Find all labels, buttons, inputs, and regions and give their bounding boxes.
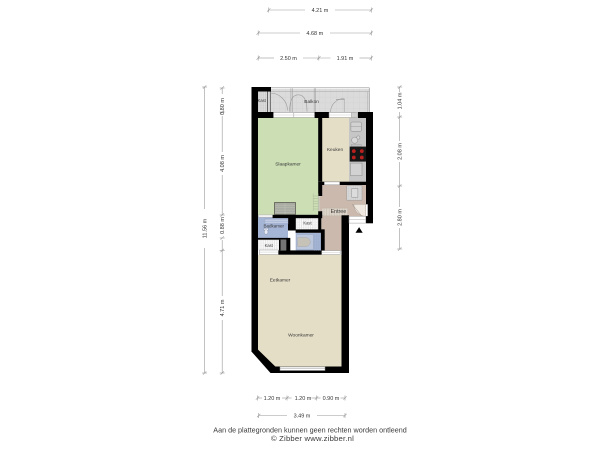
svg-text:Badkamer: Badkamer bbox=[264, 223, 285, 228]
svg-text:1.20 m: 1.20 m bbox=[295, 396, 312, 402]
svg-text:2.50 m: 2.50 m bbox=[280, 56, 297, 62]
svg-text:0.90 m: 0.90 m bbox=[323, 396, 340, 402]
svg-text:Woonkamer: Woonkamer bbox=[288, 333, 314, 339]
svg-text:3.49 m: 3.49 m bbox=[294, 413, 311, 419]
svg-text:1.91 m: 1.91 m bbox=[337, 56, 354, 62]
svg-text:11.56 m: 11.56 m bbox=[203, 218, 209, 238]
svg-text:Eetkamer: Eetkamer bbox=[270, 278, 291, 284]
svg-text:4.68 m: 4.68 m bbox=[306, 31, 323, 37]
svg-text:Balkon: Balkon bbox=[304, 99, 319, 105]
svg-text:2.80 m: 2.80 m bbox=[398, 209, 404, 226]
svg-text:Entree: Entree bbox=[331, 209, 347, 215]
svg-text:4.71 m: 4.71 m bbox=[220, 299, 226, 316]
svg-text:Slaapkamer: Slaapkamer bbox=[275, 162, 301, 168]
svg-text:4.21 m: 4.21 m bbox=[312, 8, 329, 14]
svg-text:Kast: Kast bbox=[265, 243, 274, 248]
svg-text:2.08 m: 2.08 m bbox=[398, 143, 404, 160]
svg-text:4.08 m: 4.08 m bbox=[220, 155, 226, 172]
svg-text:1.20 m: 1.20 m bbox=[264, 396, 281, 402]
svg-text:0.88 m: 0.88 m bbox=[220, 217, 226, 234]
svg-text:0.80 m: 0.80 m bbox=[220, 98, 226, 115]
svg-text:Kast: Kast bbox=[258, 98, 267, 103]
svg-text:© Zibber www.zibber.nl: © Zibber www.zibber.nl bbox=[271, 434, 354, 443]
svg-text:Keuken: Keuken bbox=[327, 147, 344, 153]
svg-text:Kast: Kast bbox=[303, 221, 312, 226]
svg-text:1.04 m: 1.04 m bbox=[398, 92, 404, 109]
